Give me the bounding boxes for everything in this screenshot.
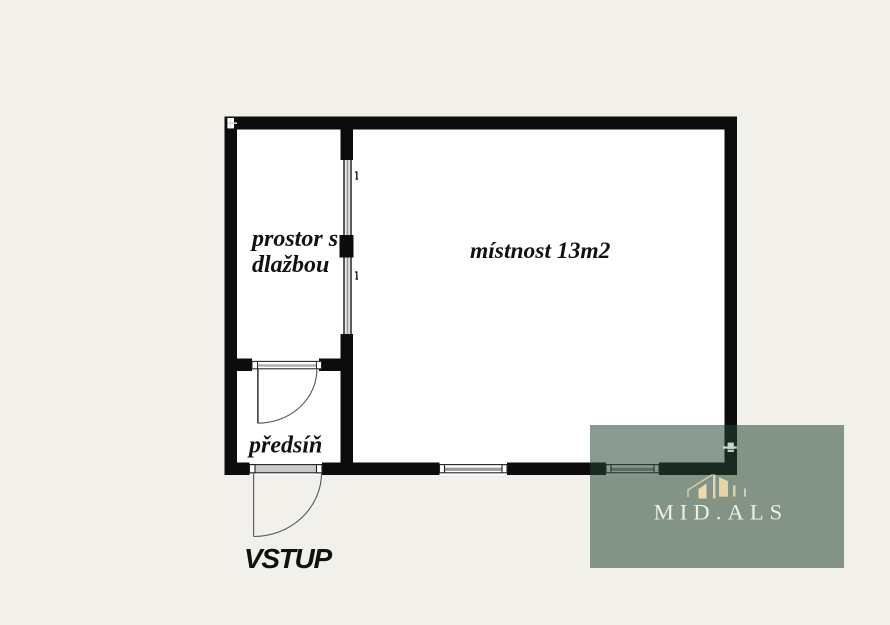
svg-text:MID.ALS: MID.ALS bbox=[654, 500, 789, 525]
svg-text:VSTUP: VSTUP bbox=[244, 543, 332, 574]
svg-text:předsíň: předsíň bbox=[247, 433, 322, 459]
svg-text:prostor s: prostor s bbox=[250, 226, 338, 252]
svg-text:dlažbou: dlažbou bbox=[252, 252, 329, 278]
svg-text:místnost 13m2: místnost 13m2 bbox=[470, 238, 611, 264]
